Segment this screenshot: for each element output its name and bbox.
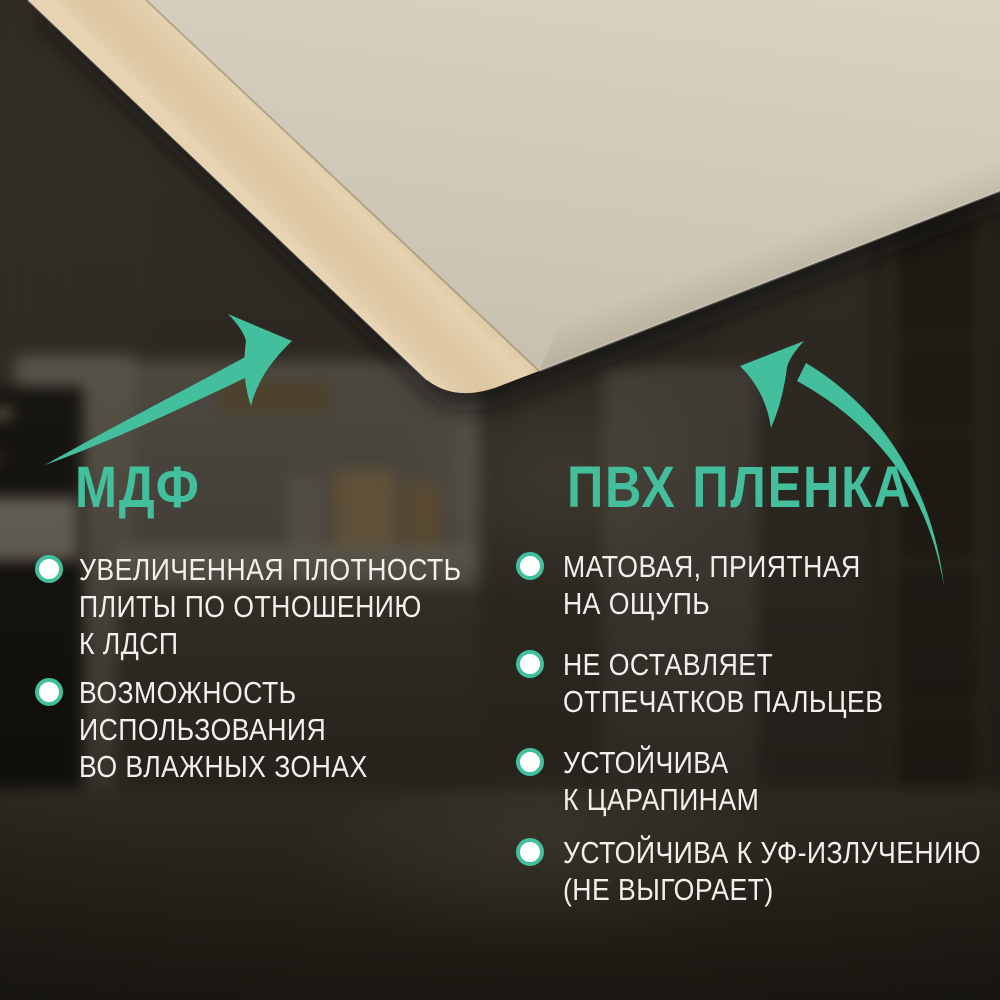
heading-pvc: ПВХ ПЛЕНКА xyxy=(567,459,912,517)
feature-line: К ЛДСП xyxy=(79,625,462,662)
mdf-panel-image xyxy=(0,0,1000,445)
feature-line: ИСПОЛЬЗОВАНИЯ xyxy=(79,711,368,748)
feature-line: УВЕЛИЧЕННАЯ ПЛОТНОСТЬ xyxy=(79,551,462,588)
infographic-root: МДФ УВЕЛИЧЕННАЯ ПЛОТНОСТЬ ПЛИТЫ ПО ОТНОШ… xyxy=(0,0,1000,1000)
feature-item: УСТОЙЧИВА К УФ-ИЗЛУЧЕНИЮ (НЕ ВЫГОРАЕТ) xyxy=(516,834,1000,908)
bullet-marker-icon xyxy=(35,678,63,706)
feature-item: МАТОВАЯ, ПРИЯТНАЯ НА ОЩУПЬ xyxy=(516,548,909,622)
feature-line: ВО ВЛАЖНЫХ ЗОНАХ xyxy=(79,748,368,785)
bullet-marker-icon xyxy=(516,552,544,580)
bullet-marker-icon xyxy=(35,555,63,583)
bullet-marker-icon xyxy=(516,650,544,678)
feature-line: ПЛИТЫ ПО ОТНОШЕНИЮ xyxy=(79,588,462,625)
feature-item: ВОЗМОЖНОСТЬ ИСПОЛЬЗОВАНИЯ ВО ВЛАЖНЫХ ЗОН… xyxy=(35,674,415,785)
feature-line: НЕ ОСТАВЛЯЕТ xyxy=(563,646,883,683)
bullet-marker-icon xyxy=(516,748,544,776)
feature-line: К ЦАРАПИНАМ xyxy=(563,781,759,818)
feature-line: МАТОВАЯ, ПРИЯТНАЯ xyxy=(563,548,861,585)
feature-line: УСТОЙЧИВА xyxy=(563,744,759,781)
feature-line: (НЕ ВЫГОРАЕТ) xyxy=(563,871,981,908)
feature-line: УСТОЙЧИВА К УФ-ИЗЛУЧЕНИЮ xyxy=(563,834,981,871)
heading-mdf: МДФ xyxy=(75,459,201,517)
feature-line: ВОЗМОЖНОСТЬ xyxy=(79,674,368,711)
feature-line: НА ОЩУПЬ xyxy=(563,585,861,622)
feature-line: ОТПЕЧАТКОВ ПАЛЬЦЕВ xyxy=(563,683,883,720)
feature-item: УВЕЛИЧЕННАЯ ПЛОТНОСТЬ ПЛИТЫ ПО ОТНОШЕНИЮ… xyxy=(35,551,524,662)
feature-item: НЕ ОСТАВЛЯЕТ ОТПЕЧАТКОВ ПАЛЬЦЕВ xyxy=(516,646,936,720)
bullet-marker-icon xyxy=(516,838,544,866)
feature-item: УСТОЙЧИВА К ЦАРАПИНАМ xyxy=(516,744,791,818)
